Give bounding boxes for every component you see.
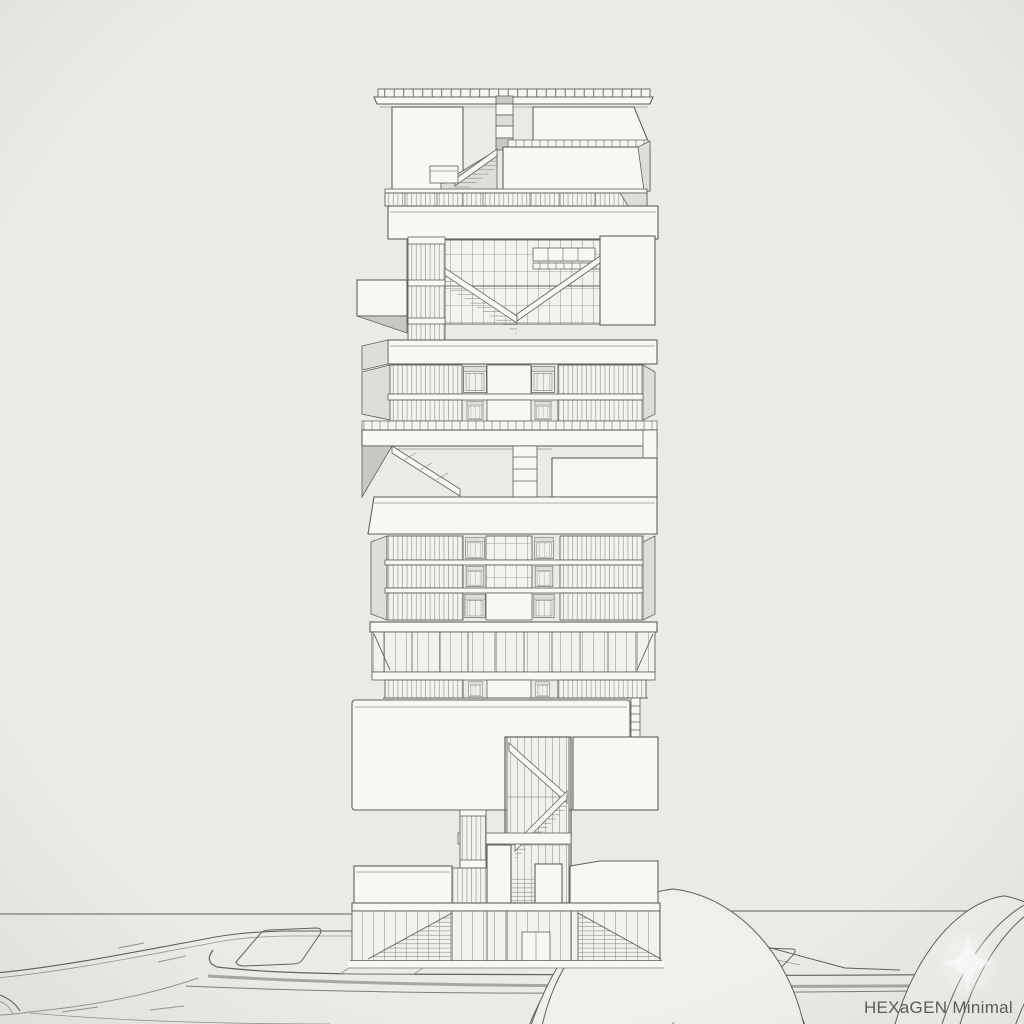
vignette-overlay	[0, 0, 1024, 1024]
watermark-text: HEXaGEN Minimal	[864, 998, 1013, 1017]
elevation-drawing: HEXaGEN Minimal	[0, 0, 1024, 1024]
architectural-drawing-canvas: HEXaGEN Minimal	[0, 0, 1024, 1024]
